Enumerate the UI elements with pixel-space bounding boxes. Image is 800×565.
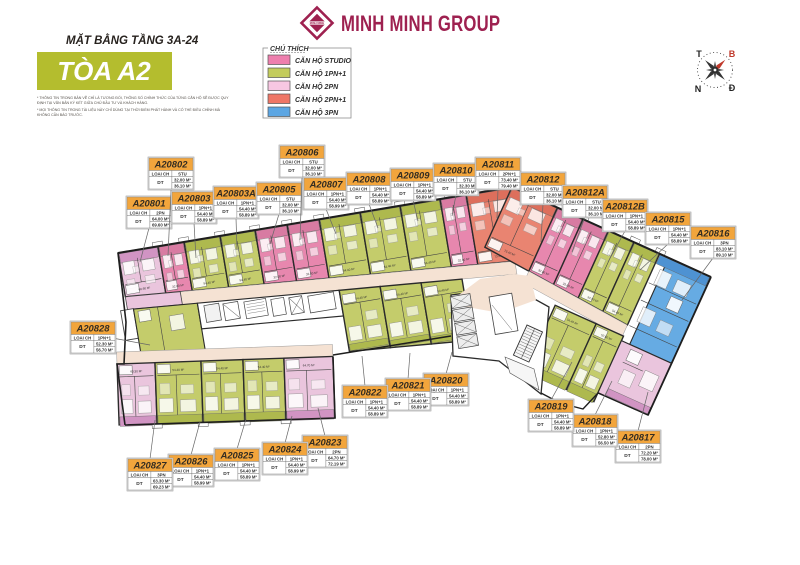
svg-text:58.89 M²: 58.89 M² [628,225,646,230]
svg-text:54.40 M²: 54.40 M² [449,393,467,398]
svg-text:54.40 M²: 54.40 M² [372,192,390,197]
svg-text:58.89 M²: 58.89 M² [368,411,386,416]
svg-text:2PN+1: 2PN+1 [503,171,517,176]
svg-text:58.89 M²: 58.89 M² [449,399,467,404]
svg-text:54.40 M²: 54.40 M² [240,468,258,473]
svg-text:32.00 M²: 32.00 M² [546,192,564,197]
svg-text:1PN+1: 1PN+1 [196,468,210,473]
svg-text:CĂN HỘ 2PN: CĂN HỘ 2PN [295,82,339,91]
svg-text:CĂN HỘ 3PN: CĂN HỘ 3PN [295,108,339,117]
svg-text:58.89 M²: 58.89 M² [197,217,215,222]
svg-text:32.30 M²: 32.30 M² [459,183,477,188]
svg-text:CĂN HỘ 2PN+1: CĂN HỘ 2PN+1 [295,95,346,104]
svg-text:A20811: A20811 [481,159,514,170]
svg-text:1PN+1: 1PN+1 [374,186,388,191]
svg-text:A20802: A20802 [154,159,189,170]
svg-text:DT: DT [611,222,617,228]
svg-text:A20819: A20819 [534,401,569,412]
svg-text:A20810: A20810 [439,165,474,176]
svg-text:LOẠI CH: LOẠI CH [131,472,149,477]
svg-text:B: B [729,49,736,59]
svg-text:64.00 M²: 64.00 M² [152,216,170,221]
svg-text:STU: STU [592,199,601,204]
svg-text:A20826: A20826 [174,456,209,467]
svg-text:1PN+1: 1PN+1 [600,428,614,433]
svg-text:MINH MINH: MINH MINH [310,21,325,25]
svg-text:58.99 M²: 58.99 M² [194,480,212,485]
svg-text:DT: DT [79,344,85,350]
svg-text:LOẠI CH: LOẠI CH [619,444,637,449]
svg-text:DT: DT [351,408,357,414]
svg-text:LOẠI CH: LOẠI CH [566,199,584,204]
svg-text:64.70 M²: 64.70 M² [303,363,315,367]
svg-text:A20812B: A20812B [604,201,645,212]
svg-text:1PN+1: 1PN+1 [413,392,427,397]
svg-text:LOẠI CH: LOẠI CH [606,213,624,218]
svg-text:LOẠI CH: LOẠI CH [346,399,364,404]
svg-text:MINH MINH GROUP: MINH MINH GROUP [341,12,500,37]
svg-text:DT: DT [271,465,277,471]
svg-text:A20816: A20816 [696,228,731,239]
svg-text:1PN+1: 1PN+1 [290,456,304,461]
svg-text:* MỌI THÔNG TIN TRONG TÀI LIỆU: * MỌI THÔNG TIN TRONG TÀI LIỆU NÀY CHỈ D… [37,107,221,112]
svg-text:54.40 M²: 54.40 M² [368,405,386,410]
svg-text:1PN+1: 1PN+1 [370,399,384,404]
svg-text:1PN+1: 1PN+1 [98,335,112,340]
svg-text:LOẠI CH: LOẠI CH [152,171,170,176]
svg-text:A20823: A20823 [308,437,343,448]
svg-text:73.40 M²: 73.40 M² [501,177,519,182]
svg-text:DT: DT [222,209,228,215]
svg-text:LOẠI CH: LOẠI CH [218,462,236,467]
svg-text:2PN: 2PN [332,449,340,454]
svg-text:LOẠI CH: LOẠI CH [479,171,497,176]
svg-text:54.40 M²: 54.40 M² [288,462,306,467]
svg-text:69.23 M²: 69.23 M² [153,484,171,489]
svg-text:DT: DT [399,191,405,197]
svg-text:63.30 M²: 63.30 M² [130,369,142,373]
svg-text:1PN+1: 1PN+1 [673,226,687,231]
svg-text:LOẠI CH: LOẠI CH [350,186,368,191]
svg-text:A20803: A20803 [177,193,212,204]
svg-text:DT: DT [136,481,142,487]
svg-text:54.40 M²: 54.40 M² [216,366,228,370]
svg-text:DT: DT [699,249,705,255]
svg-text:* THÔNG TIN TRONG BẢN VẼ CHỈ L: * THÔNG TIN TRONG BẢN VẼ CHỈ LÀ TƯƠNG ĐỐ… [37,95,229,100]
svg-text:58.89 M²: 58.89 M² [240,474,258,479]
svg-text:DT: DT [654,235,660,241]
svg-text:CĂN HỘ 1PN+1: CĂN HỘ 1PN+1 [295,69,346,78]
svg-text:64.70 M²: 64.70 M² [328,455,346,460]
svg-text:36.10 M²: 36.10 M² [305,171,323,176]
svg-text:58.89 M²: 58.89 M² [411,404,429,409]
svg-text:DT: DT [394,401,400,407]
svg-text:A20818: A20818 [578,416,613,427]
svg-text:69.60 M²: 69.60 M² [152,222,170,227]
svg-text:A20801: A20801 [132,198,166,209]
svg-text:STU: STU [286,196,295,201]
svg-text:DT: DT [355,195,361,201]
svg-text:TÒA A2: TÒA A2 [57,56,151,86]
svg-text:LOẠI CH: LOẠI CH [74,335,92,340]
svg-text:LOẠI CH: LOẠI CH [175,205,193,210]
svg-text:DT: DT [624,453,630,459]
svg-text:1PN+1: 1PN+1 [199,205,213,210]
svg-text:LOẠI CH: LOẠI CH [260,196,278,201]
svg-text:72.19 M²: 72.19 M² [328,461,346,466]
svg-text:54.40 M²: 54.40 M² [239,206,257,211]
svg-text:LOẠI CH: LOẠI CH [389,392,407,397]
svg-text:72.20 M²: 72.20 M² [641,450,659,455]
svg-text:DT: DT [157,180,163,186]
svg-text:79.40 M²: 79.40 M² [501,183,519,188]
svg-text:DT: DT [135,219,141,225]
svg-text:CĂN HỘ STUDIO: CĂN HỘ STUDIO [295,56,352,65]
svg-text:ĐỊNH TẠI VĂN BẢN KÝ KẾT GIỮA: ĐỊNH TẠI VĂN BẢN KÝ KẾT GIỮA CHỦ ĐẦU TƯ … [37,100,148,105]
svg-text:2PN: 2PN [645,444,653,449]
svg-text:A20806: A20806 [285,147,320,158]
svg-text:A20812A: A20812A [564,187,605,198]
svg-text:A20827: A20827 [133,460,168,471]
svg-text:A20807: A20807 [309,179,344,190]
svg-text:KHÔNG CẦN BÁO TRƯỚC.: KHÔNG CẦN BÁO TRƯỚC. [37,112,83,117]
svg-text:DT: DT [442,186,448,192]
svg-text:32.00 M²: 32.00 M² [282,202,300,207]
svg-text:LOẠI CH: LOẠI CH [532,413,550,418]
svg-text:LOẠI CH: LOẠI CH [524,186,542,191]
svg-text:LOẠI CH: LOẠI CH [576,428,594,433]
svg-text:54.40 M²: 54.40 M² [197,211,215,216]
svg-text:A20812: A20812 [526,174,561,185]
svg-text:1PN+1: 1PN+1 [556,413,570,418]
svg-text:1PN+1: 1PN+1 [241,200,255,205]
svg-text:78.00 M²: 78.00 M² [641,456,659,461]
svg-text:1PN+1: 1PN+1 [451,387,465,392]
svg-text:54.40 M²: 54.40 M² [258,365,270,369]
svg-text:DT: DT [311,458,317,464]
svg-text:CHÚ THÍCH: CHÚ THÍCH [270,44,309,53]
svg-text:LOẠI CH: LOẠI CH [694,240,712,245]
svg-text:Đ: Đ [729,83,736,93]
svg-text:A20821: A20821 [391,380,425,391]
svg-text:A20803A: A20803A [215,188,256,199]
svg-text:A20822: A20822 [348,387,383,398]
svg-text:DT: DT [265,205,271,211]
svg-text:DT: DT [581,437,587,443]
svg-text:54.40 M²: 54.40 M² [329,197,347,202]
svg-text:A20809: A20809 [396,170,431,181]
svg-text:52.30 M²: 52.30 M² [96,341,114,346]
svg-text:MẶT BẰNG TẦNG 3A-24: MẶT BẰNG TẦNG 3A-24 [66,34,199,47]
svg-text:32.00 M²: 32.00 M² [305,165,323,170]
svg-text:DT: DT [537,422,543,428]
svg-text:DT: DT [432,396,438,402]
svg-text:A20815: A20815 [651,214,686,225]
svg-text:32.00 M²: 32.00 M² [174,177,192,182]
svg-text:56.50 M²: 56.50 M² [598,440,616,445]
svg-text:1PN+1: 1PN+1 [418,182,432,187]
svg-text:A20820: A20820 [429,375,464,386]
svg-text:56.70 M²: 56.70 M² [96,347,114,352]
svg-text:STU: STU [178,171,187,176]
svg-text:LOẠI CH: LOẠI CH [307,191,325,196]
svg-text:36.10 M²: 36.10 M² [174,183,192,188]
svg-text:54.40 M²: 54.40 M² [411,398,429,403]
svg-text:3PN: 3PN [157,472,165,477]
svg-text:58.99 M²: 58.99 M² [288,468,306,473]
svg-text:A20808: A20808 [352,174,387,185]
svg-text:54.40 M²: 54.40 M² [416,188,434,193]
svg-text:89.10 M²: 89.10 M² [716,252,734,257]
svg-text:LOẠI CH: LOẠI CH [283,159,301,164]
svg-text:LOẠI CH: LOẠI CH [649,226,667,231]
svg-text:54.40 M²: 54.40 M² [628,219,646,224]
svg-text:1PN+1: 1PN+1 [630,213,644,218]
svg-text:LOẠI CH: LOẠI CH [130,210,148,215]
svg-text:A20824: A20824 [268,444,303,455]
svg-text:DT: DT [484,180,490,186]
svg-text:DT: DT [288,168,294,174]
svg-text:LOẠI CH: LOẠI CH [217,200,235,205]
svg-text:DT: DT [180,214,186,220]
svg-text:58.89 M²: 58.89 M² [416,194,434,199]
svg-text:STU: STU [309,159,318,164]
svg-text:54.40 M²: 54.40 M² [194,474,212,479]
svg-text:LOẠI CH: LOẠI CH [266,456,284,461]
svg-text:DT: DT [529,195,535,201]
svg-text:83.10 M²: 83.10 M² [716,246,734,251]
svg-text:36.10 M²: 36.10 M² [282,208,300,213]
svg-text:3PN: 3PN [720,240,728,245]
svg-text:LOẠI CH: LOẠI CH [437,177,455,182]
svg-text:54.40 M²: 54.40 M² [554,419,572,424]
svg-text:STU: STU [463,177,472,182]
svg-text:DT: DT [571,208,577,214]
svg-text:LOẠI CH: LOẠI CH [394,182,412,187]
svg-text:36.10 M²: 36.10 M² [546,198,564,203]
svg-text:58.89 M²: 58.89 M² [239,212,257,217]
svg-text:DT: DT [223,471,229,477]
svg-text:A20805: A20805 [262,184,297,195]
svg-text:N: N [695,84,702,94]
svg-text:58.89 M²: 58.89 M² [671,238,689,243]
svg-text:2PN: 2PN [156,210,164,215]
svg-text:54.40 M²: 54.40 M² [671,232,689,237]
svg-text:A20828: A20828 [76,323,111,334]
svg-text:A20825: A20825 [220,450,255,461]
svg-text:58.89 M²: 58.89 M² [554,425,572,430]
svg-text:T: T [696,49,702,59]
svg-text:58.89 M²: 58.89 M² [372,198,390,203]
svg-text:58.99 M²: 58.99 M² [329,203,347,208]
svg-text:54.40 M²: 54.40 M² [172,368,184,372]
svg-text:LOẠI CH: LOẠI CH [172,468,190,473]
svg-text:1PN+1: 1PN+1 [242,462,256,467]
svg-text:1PN+1: 1PN+1 [331,191,345,196]
svg-text:A20817: A20817 [621,432,656,443]
svg-text:DT: DT [312,200,318,206]
svg-text:36.10 M²: 36.10 M² [459,189,477,194]
svg-text:DT: DT [177,477,183,483]
svg-text:52.80 M²: 52.80 M² [598,434,616,439]
svg-text:STU: STU [550,186,559,191]
svg-text:63.30 M²: 63.30 M² [153,478,171,483]
